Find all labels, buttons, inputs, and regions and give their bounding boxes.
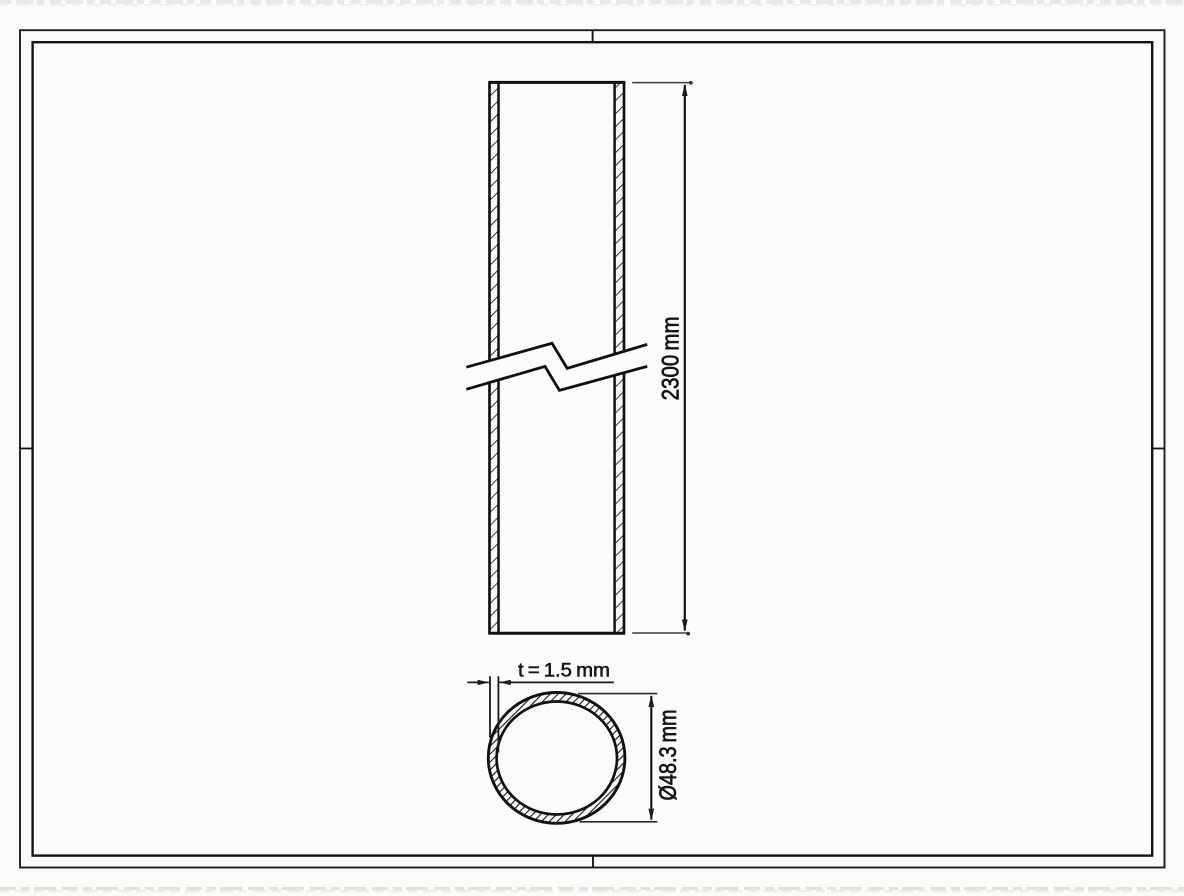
svg-text:2300 mm: 2300 mm: [658, 316, 685, 400]
svg-text:t = 1.5 mm: t = 1.5 mm: [518, 660, 610, 681]
svg-text:Ø48.3 mm: Ø48.3 mm: [656, 710, 682, 801]
